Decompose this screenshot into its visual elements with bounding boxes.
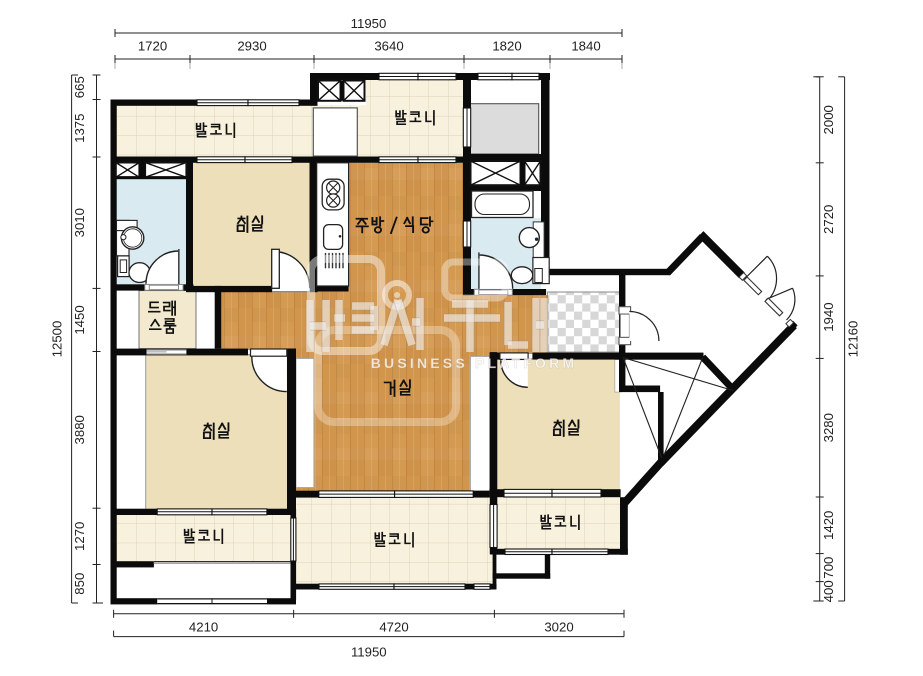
svg-text:1940: 1940 [821,302,836,331]
svg-text:3640: 3640 [374,39,403,54]
svg-text:1820: 1820 [492,39,521,54]
svg-text:3020: 3020 [544,620,573,635]
svg-text:2930: 2930 [237,39,266,54]
svg-text:11950: 11950 [351,645,387,660]
svg-text:1270: 1270 [72,522,87,551]
svg-text:2720: 2720 [821,205,836,234]
svg-text:1840: 1840 [571,39,600,54]
svg-text:12160: 12160 [846,321,861,358]
svg-text:1720: 1720 [138,39,167,54]
svg-text:11950: 11950 [351,16,387,31]
svg-text:400: 400 [821,580,836,602]
svg-text:3880: 3880 [72,415,87,444]
svg-text:3280: 3280 [821,413,836,442]
svg-text:850: 850 [72,573,87,595]
svg-text:2000: 2000 [821,105,836,134]
svg-text:1450: 1450 [72,305,87,334]
svg-text:3010: 3010 [72,208,87,237]
svg-text:4210: 4210 [189,620,218,635]
svg-text:4720: 4720 [379,620,408,635]
svg-text:1375: 1375 [72,114,87,143]
svg-text:700: 700 [821,557,836,579]
svg-text:BUSINESS PLATFORM: BUSINESS PLATFORM [371,355,578,371]
svg-text:665: 665 [72,76,87,98]
svg-text:1420: 1420 [821,511,836,540]
svg-text:12500: 12500 [50,321,65,358]
